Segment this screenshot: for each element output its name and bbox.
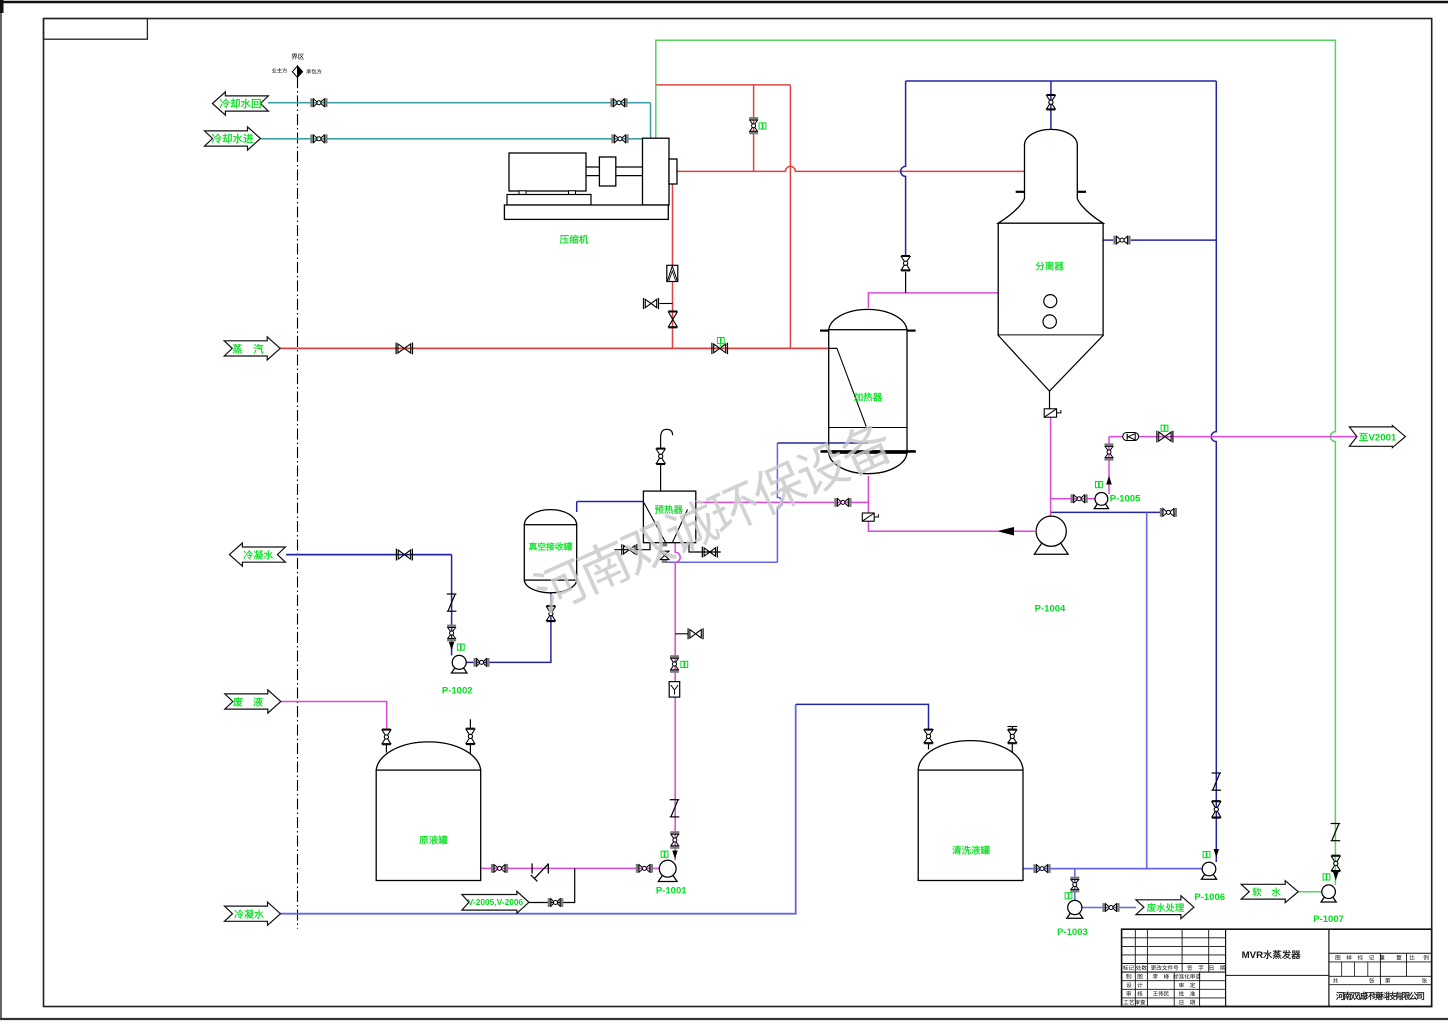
svg-text:MVR: MVR	[1242, 950, 1263, 961]
svg-text:V-2005,V-2006: V-2005,V-2006	[468, 897, 524, 907]
svg-text:P-1005: P-1005	[1110, 494, 1141, 505]
svg-text:P-1006: P-1006	[1194, 892, 1225, 903]
svg-text:V2001: V2001	[1369, 433, 1397, 444]
svg-text:P-1007: P-1007	[1313, 914, 1344, 925]
svg-text:P-1003: P-1003	[1057, 927, 1088, 938]
svg-text:P-1002: P-1002	[442, 685, 473, 696]
svg-text:P-1004: P-1004	[1035, 604, 1066, 615]
svg-text:P-1001: P-1001	[656, 886, 687, 897]
